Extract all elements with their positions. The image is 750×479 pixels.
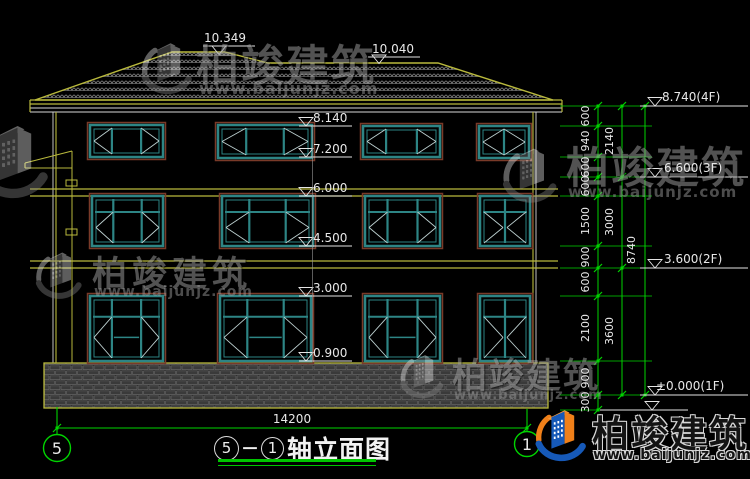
window: [90, 194, 166, 249]
watermark-url: www.baijunjz.com: [94, 284, 253, 300]
elevation-label: 10.349: [204, 32, 246, 45]
overall-width-label: 14200: [252, 413, 332, 426]
elevation-drawing-canvas: 柏竣建筑 www.baijunjz.com 柏竣建筑 www.baijunjz.…: [0, 0, 750, 479]
eave-band: [30, 100, 562, 112]
elevation-label: 6.600(3F): [664, 162, 722, 175]
elevation-label: 7.200: [313, 143, 347, 156]
watermark-url: www.baijunjz.com: [199, 79, 378, 98]
elevation-label: 3.600(2F): [664, 253, 722, 266]
title-axis-right: 1: [261, 437, 284, 460]
baijun-logo-icon: [531, 403, 591, 469]
watermark-logo-icon: [30, 246, 88, 306]
dim-label: 8740: [624, 220, 640, 280]
elevation-label: 6.000: [313, 182, 347, 195]
window: [88, 123, 166, 160]
watermark-logo-icon: [396, 349, 448, 405]
watermark-logo-icon: [497, 141, 563, 211]
dim-label: 3600: [602, 301, 618, 361]
title-underline-thick: [218, 459, 376, 462]
elevation-label: 0.900: [313, 347, 347, 360]
elevation-label: 8.740(4F): [662, 91, 720, 104]
elevation-label: 3.000: [313, 282, 347, 295]
window: [216, 123, 315, 161]
elevation-label: 10.040: [372, 43, 414, 56]
elevation-label: ±0.000(1F): [656, 380, 724, 393]
elevation-label: 8.140: [313, 112, 347, 125]
windows-layer: [88, 123, 533, 364]
title-dash: －: [241, 435, 259, 461]
window: [363, 194, 443, 249]
watermark-logo-icon: [136, 36, 198, 102]
dim-label: 2140: [602, 111, 618, 171]
watermark-logo-icon: [0, 95, 55, 230]
dim-label: 3000: [602, 192, 618, 252]
watermark-url: www.baijunjz.com: [593, 447, 750, 463]
title-underline-thin: [218, 465, 376, 466]
elevation-label: 4.500: [313, 232, 347, 245]
window: [88, 294, 166, 364]
title-axis-left: 5: [214, 436, 239, 461]
window: [361, 124, 443, 160]
wall-left: [53, 112, 72, 363]
axis-bubble-left-label: 5: [46, 439, 68, 458]
